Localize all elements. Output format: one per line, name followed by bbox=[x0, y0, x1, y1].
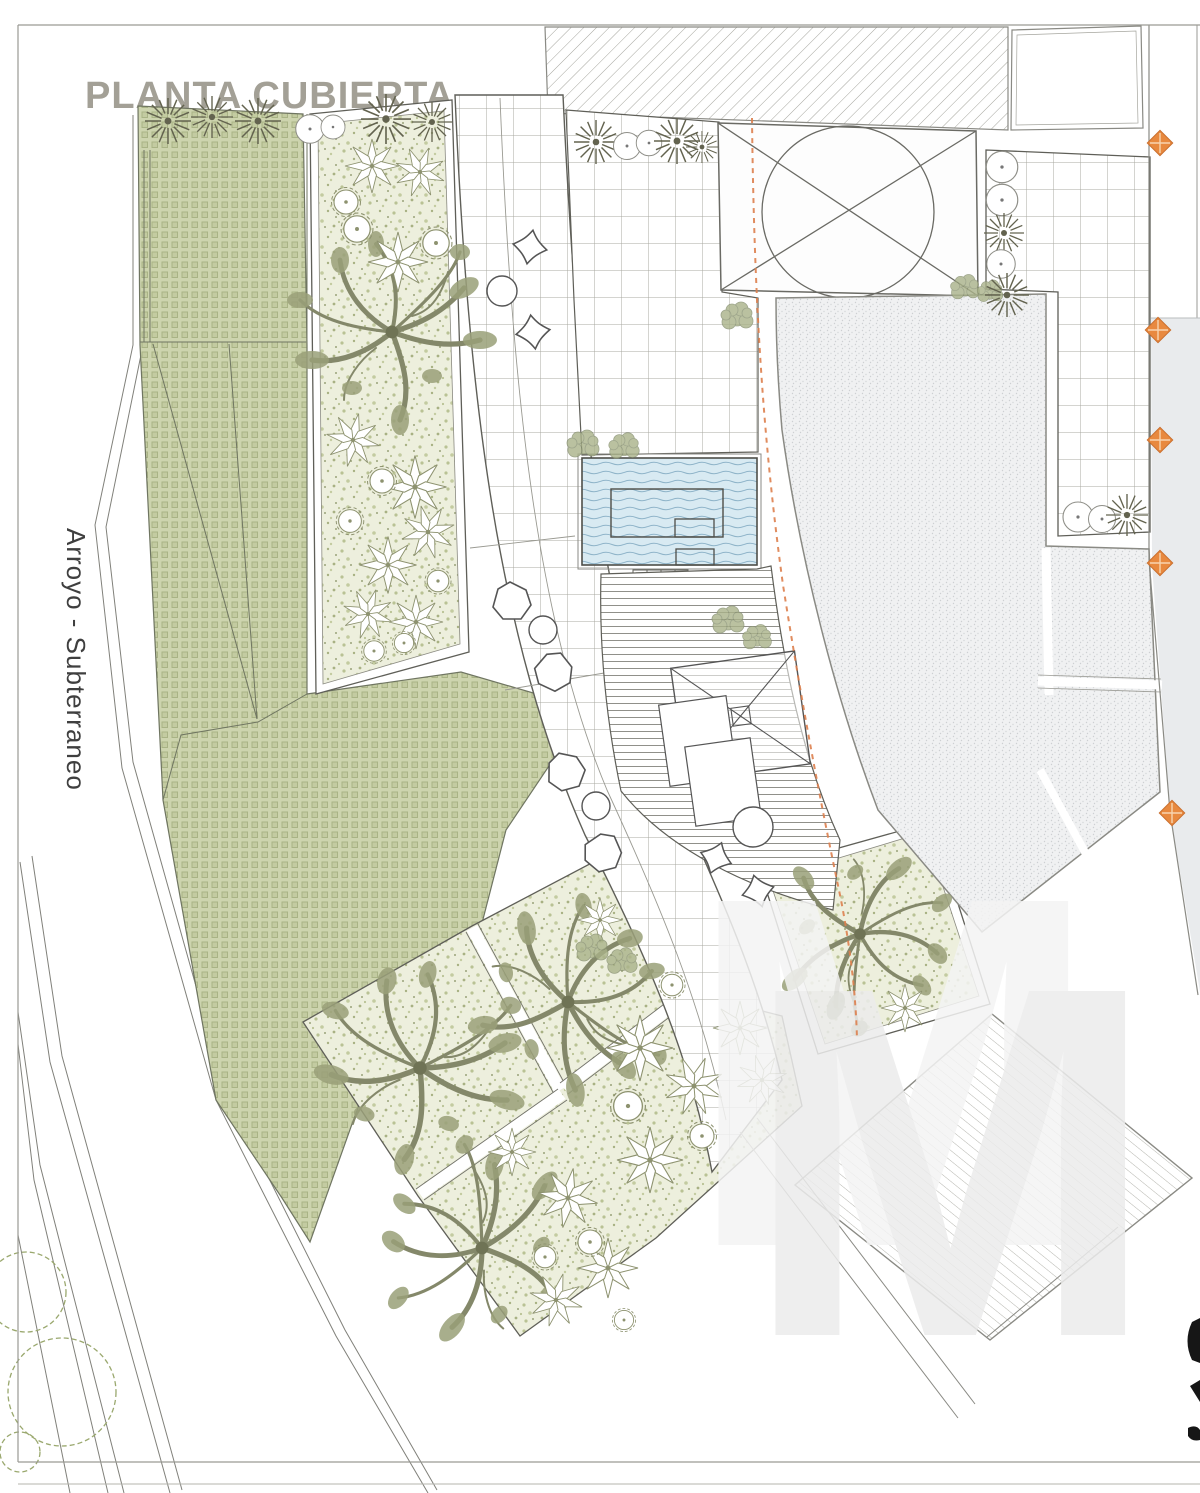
skylight-pavilion bbox=[718, 123, 978, 298]
side-table bbox=[487, 276, 517, 306]
planta-cubierta-drawing: PLANTA CUBIERTA bbox=[0, 0, 1200, 1493]
side-table bbox=[582, 792, 610, 820]
watermark: M M bbox=[685, 792, 1159, 1441]
side-table bbox=[529, 616, 557, 644]
planting-bed-top bbox=[310, 100, 469, 694]
street-label: Arroyo - Subterraneo bbox=[61, 528, 91, 791]
plan-sheet: PLANTA CUBIERTA bbox=[0, 0, 1200, 1493]
watermark-letter: M bbox=[742, 882, 1159, 1441]
